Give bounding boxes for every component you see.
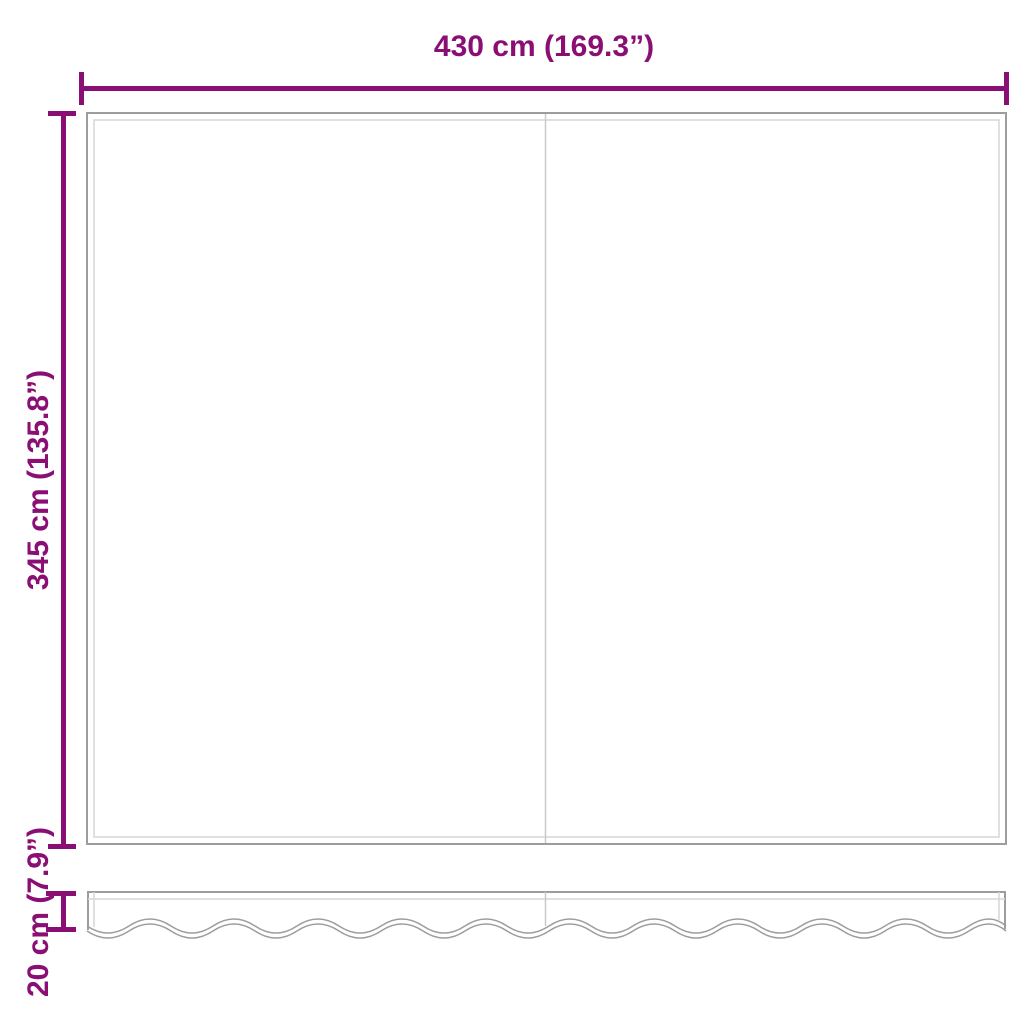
product-dimension-diagram: 430 cm (169.3”) 345 cm (135.8”) 20 cm (7… [0,0,1024,1024]
valance-strip [87,892,1006,938]
width-dimension-endcap-left [79,72,84,105]
valance-height-dimension-endcap-bottom [46,927,76,932]
height-dimension-endcap-top [48,111,76,116]
valance-height-dimension-endcap-top [46,891,76,896]
height-dimension-line [61,111,66,849]
height-dimension-label: 345 cm (135.8”) [20,280,58,680]
width-dimension-label: 430 cm (169.3”) [81,28,1007,66]
valance-wavy-edge-lower [87,924,1006,938]
width-dimension-line [81,86,1007,91]
fabric-panel-outline [87,113,1006,844]
awning-fabric-drawing [0,0,1024,1024]
fabric-main-panel [87,113,1006,844]
width-dimension-endcap-right [1004,72,1009,105]
